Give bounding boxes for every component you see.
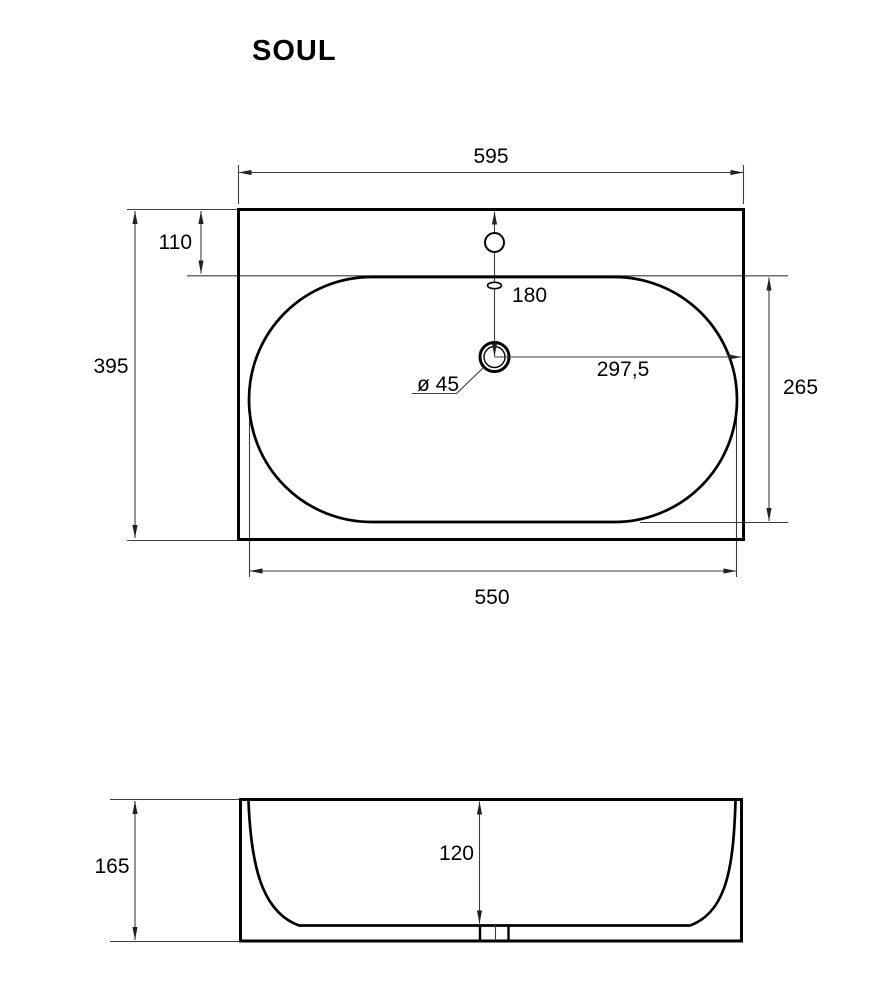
overflow-hole — [488, 282, 502, 288]
dim-label-165: 165 — [94, 855, 129, 878]
sink-outline-side-view — [241, 800, 742, 942]
drawing-page: SOUL 59 — [0, 0, 888, 1000]
tap-hole — [485, 233, 504, 252]
dim-label-595: 595 — [473, 145, 508, 168]
sink-outline-top-view — [239, 210, 744, 540]
dim-label-180: 180 — [512, 284, 547, 307]
dim-label-110: 110 — [159, 231, 192, 254]
dim-label-395: 395 — [93, 355, 128, 378]
dim-label-120: 120 — [439, 842, 474, 865]
technical-drawing: SOUL 59 — [0, 0, 888, 1000]
product-title: SOUL — [252, 35, 337, 67]
dim-label-297-5: 297,5 — [597, 358, 650, 381]
dim-label-drain-diameter: ø 45 — [417, 373, 459, 396]
bowl-profile — [249, 801, 736, 926]
bowl-oval — [249, 277, 737, 522]
dim-label-265: 265 — [783, 376, 818, 399]
dim-label-550: 550 — [474, 586, 509, 609]
